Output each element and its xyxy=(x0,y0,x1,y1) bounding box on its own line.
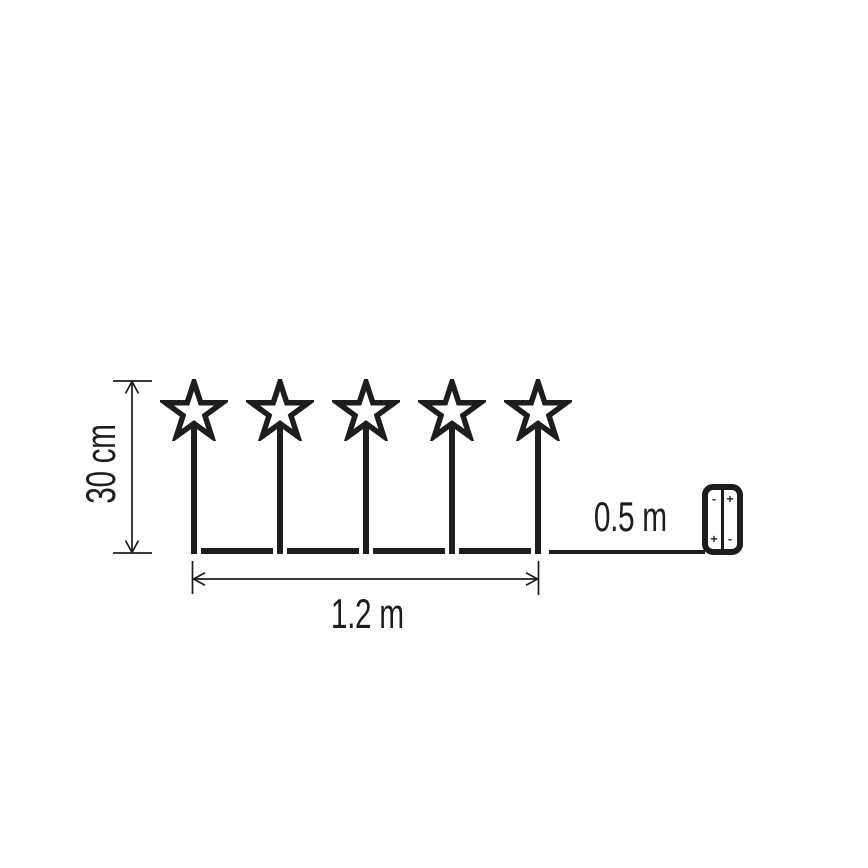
star-stake-light xyxy=(418,379,486,555)
ground-wire-segment xyxy=(287,548,359,554)
lead-length-label: 0.5 m xyxy=(550,495,710,539)
star-stake-light xyxy=(160,379,228,555)
star-icon xyxy=(332,379,400,441)
star-icon xyxy=(418,379,486,441)
battery-polarity-right-bottom: - xyxy=(724,533,736,545)
ground-wire-segment xyxy=(459,548,531,554)
star-icon xyxy=(246,379,314,441)
ground-wire-segment xyxy=(201,548,273,554)
length-label: 1.2 m xyxy=(287,592,447,636)
star-icon xyxy=(504,379,572,441)
star-stake-light xyxy=(246,379,314,555)
height-label: 30 cm xyxy=(79,384,123,544)
battery-polarity-right-top: + xyxy=(724,493,736,505)
dimension-diagram: - + + - 30 cm 1.2 m 0.5 m xyxy=(0,0,868,868)
ground-wire-segment xyxy=(373,548,445,554)
lead-wire xyxy=(549,550,705,554)
star-stake-light xyxy=(332,379,400,555)
star-icon xyxy=(160,379,228,441)
